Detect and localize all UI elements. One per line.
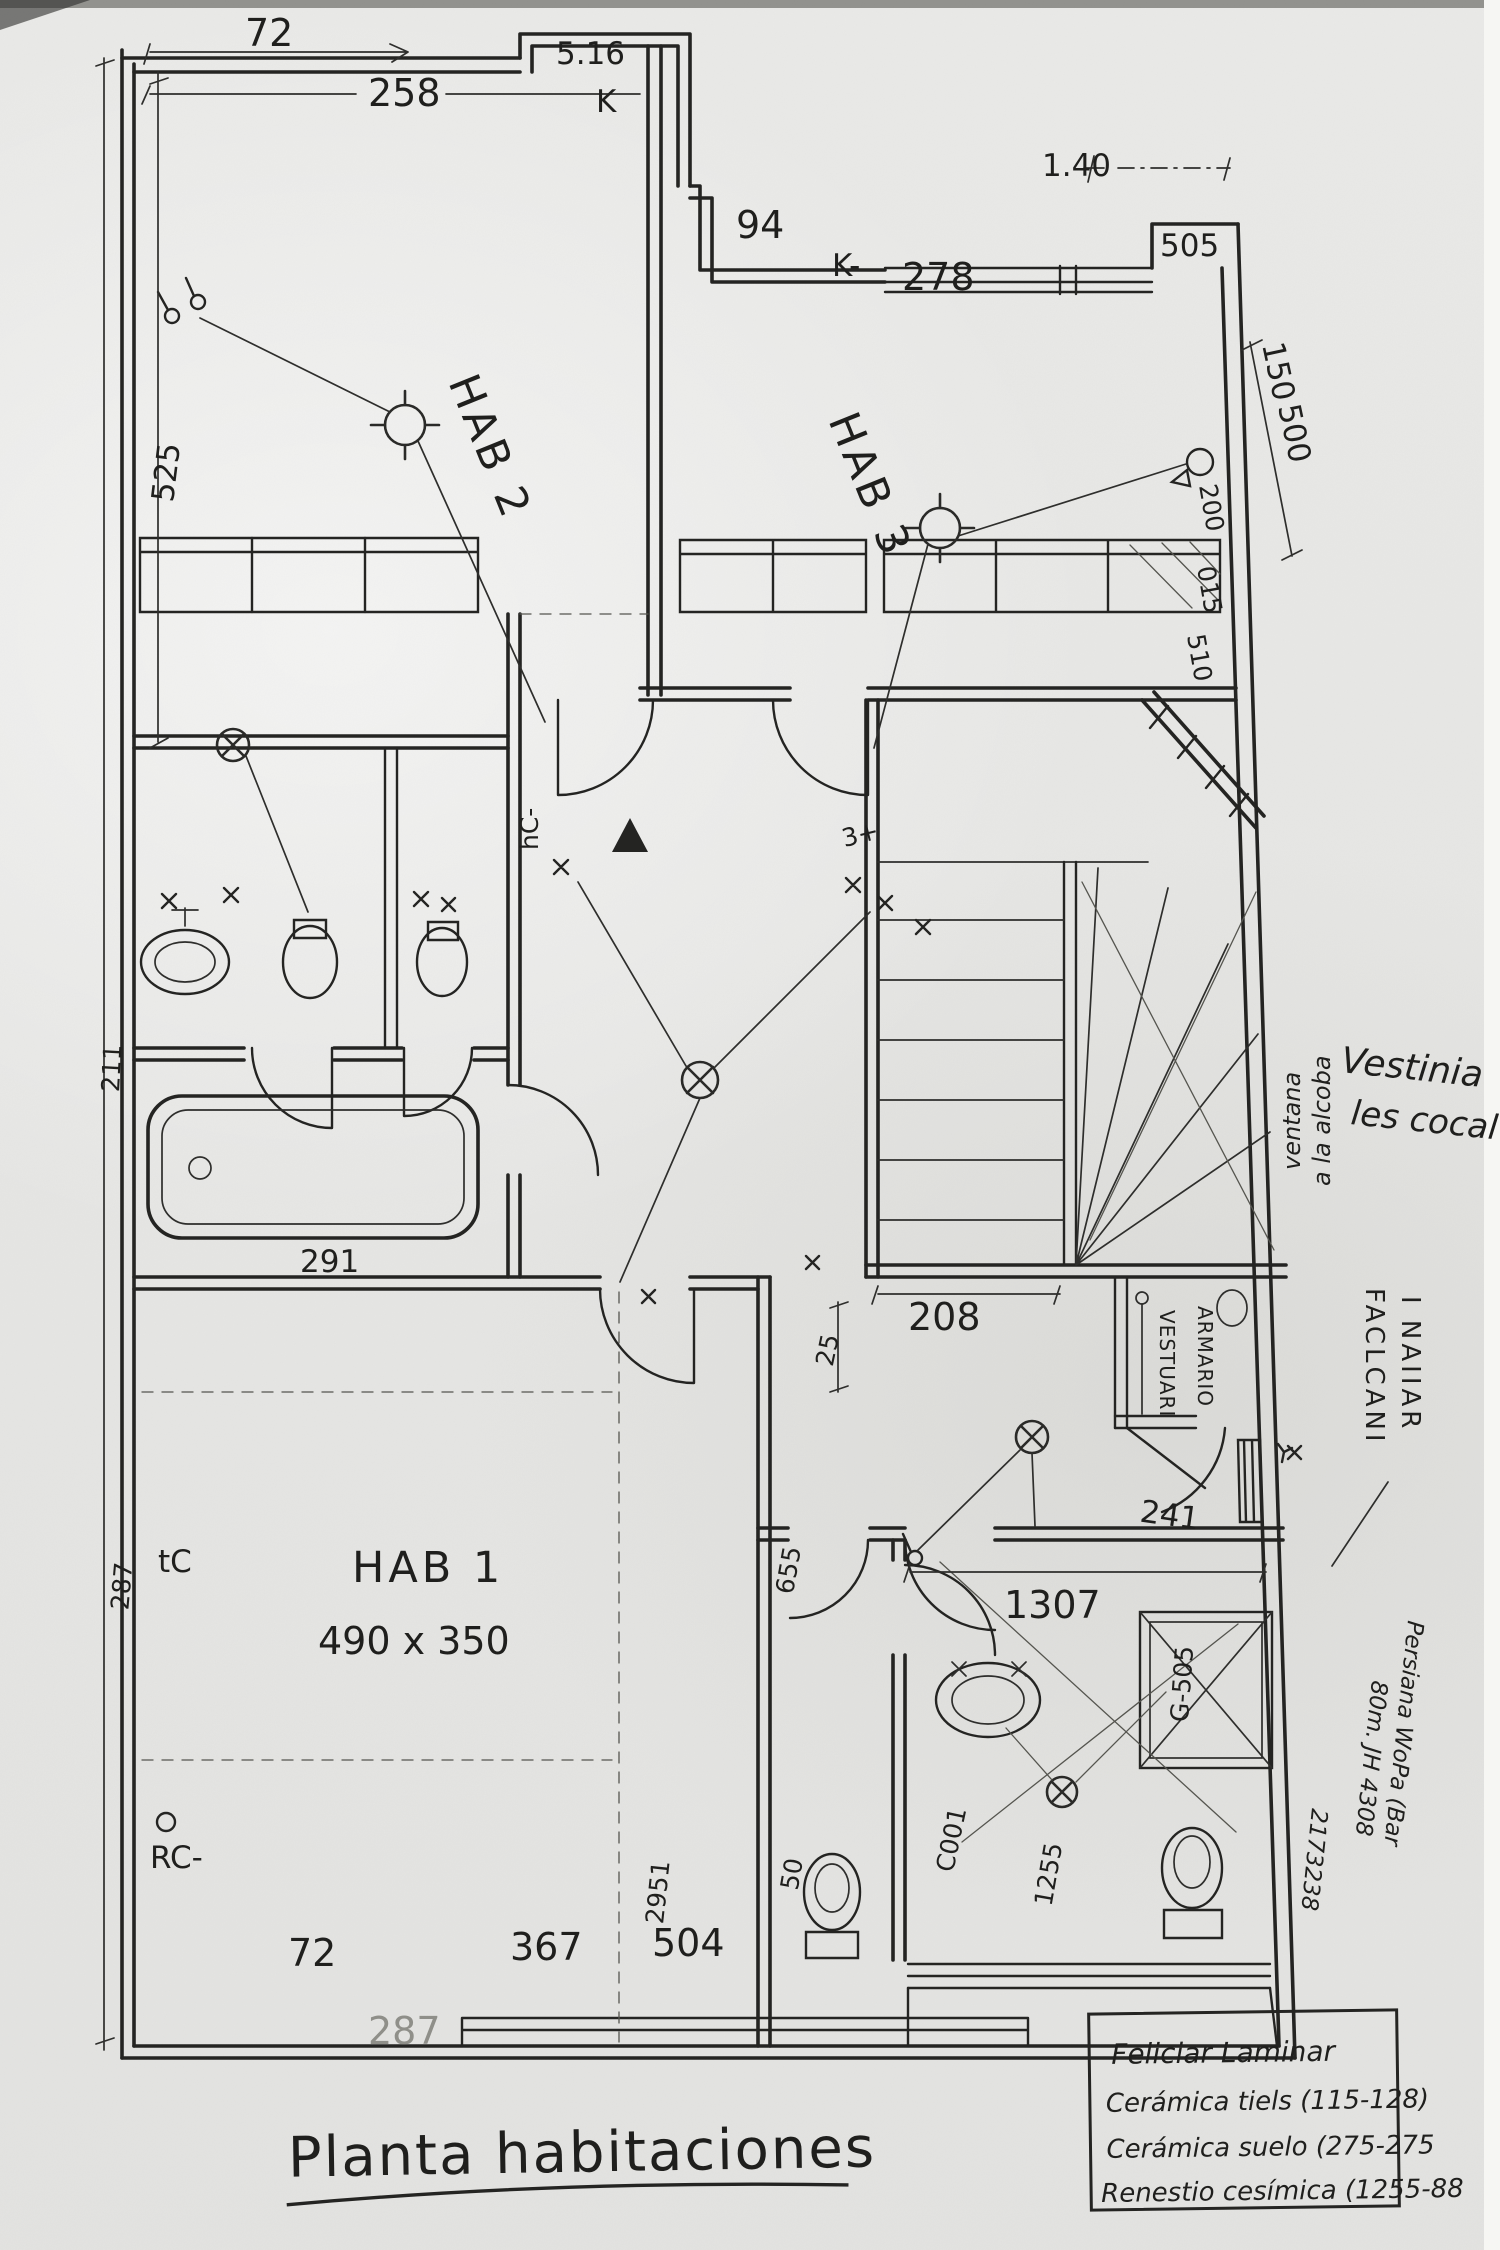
dim-258: 258 [368,71,441,115]
room-size-hab1: 490 x 350 [318,1619,510,1663]
label-vestuari: VESTUARI [1155,1310,1179,1417]
dim-72-bottom: 72 [288,1931,336,1975]
label-k-dash: K- [832,248,860,284]
dim-1-40: 1.40 [1042,148,1111,184]
room-label-hab1: HAB 1 [352,1543,504,1593]
code-g505: G-505 [1165,1645,1199,1723]
legend-line-1: Feliciar Laminar [1111,2035,1337,2071]
note-side-2: I NAIIAR [1395,1296,1425,1432]
legend-line-3: Cerámica suelo (275-275 [1106,2130,1434,2165]
scanned-floor-plan: 72 258 5.16 K 94 K- 278 1.40 505 150 500… [0,0,1500,2250]
dim-367: 367 [510,1925,583,1969]
dim-211: 211 [96,1044,127,1093]
dim-50: 50 [775,1856,809,1892]
dim-504: 504 [652,1921,725,1965]
page-title: Planta habitaciones [287,2115,876,2190]
photo-edge-top [0,0,1500,8]
dim-208: 208 [908,1295,981,1339]
dim-505: 505 [1160,228,1219,264]
note-side-1: FACLCANI [1359,1288,1389,1446]
legend-line-2: Cerámica tiels (115-128) [1106,2084,1430,2119]
note-ventana-line1: ventana [1278,1072,1306,1170]
label-tc: tC [158,1544,192,1580]
dim-278: 278 [902,255,975,299]
label-hc: hC- [515,808,544,850]
dim-287-left: 287 [105,1561,138,1611]
dim-94: 94 [736,203,784,247]
label-armario: ARMARIO [1193,1306,1217,1407]
dim-72-top: 72 [245,11,293,55]
dim-1307: 1307 [1004,1583,1101,1627]
floor-plan-drawing: 72 258 5.16 K 94 K- 278 1.40 505 150 500… [0,0,1500,2250]
note-ventana-line2: a la alcoba [1308,1055,1336,1186]
dim-525: 525 [145,441,188,504]
label-rc: RC- [150,1840,203,1876]
dim-291: 291 [300,1244,359,1280]
dim-287-bottom: 287 [368,2009,441,2053]
legend-line-4: Renestio cesímica (1255-88 [1101,2174,1464,2209]
label-k: K [596,84,617,120]
dim-5-16: 5.16 [556,36,625,72]
